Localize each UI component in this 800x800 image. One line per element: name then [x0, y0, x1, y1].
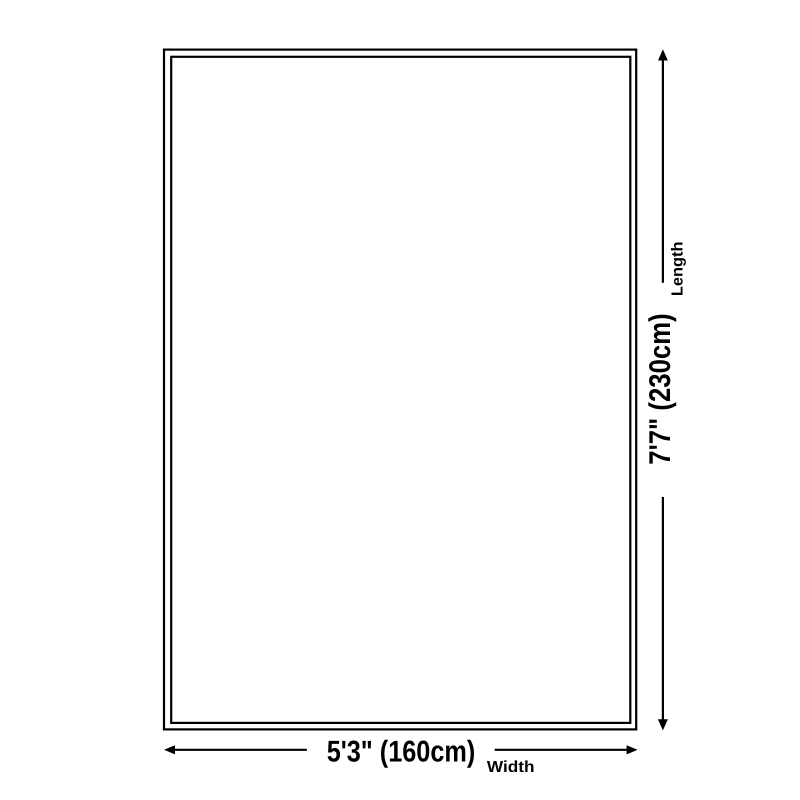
svg-text:Length: Length — [670, 242, 687, 297]
svg-text:Width: Width — [487, 759, 535, 776]
svg-text:5'3" (160cm): 5'3" (160cm) — [327, 736, 476, 769]
svg-text:7'7" (230cm): 7'7" (230cm) — [644, 313, 677, 464]
